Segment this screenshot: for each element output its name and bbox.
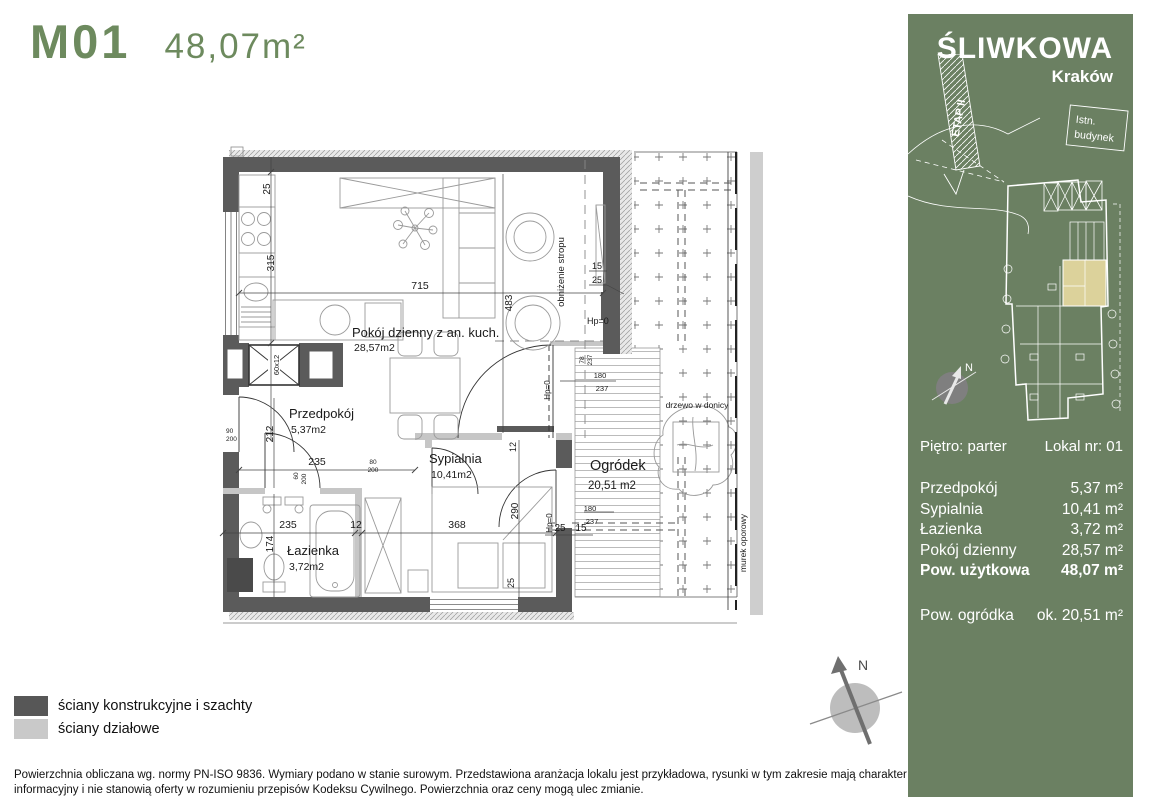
dim: 60 — [293, 472, 300, 480]
terrace-door-living — [458, 345, 553, 438]
floor-plan: drzewo w donicy murek oporowy — [215, 145, 775, 635]
site-boundary-dashed — [1113, 204, 1120, 414]
table-row: Przedpokój 5,37 m² — [920, 480, 1123, 501]
existing-label-2: budynek — [1074, 129, 1115, 145]
dim: 15 — [592, 261, 602, 271]
structural-wall-swatch — [14, 696, 48, 716]
dim: 78 — [579, 356, 586, 364]
legend-label: ściany działowe — [58, 721, 160, 737]
dim: 237 — [586, 517, 599, 526]
garden-label: Pow. ogródka — [920, 607, 1014, 625]
legend-label: ściany konstrukcyjne i szachty — [58, 698, 252, 714]
dim: 180 — [584, 504, 597, 513]
dim: 290 — [510, 502, 521, 519]
table-row-total: Pow. użytkowa 48,07 m² — [920, 562, 1123, 583]
room-area: 10,41 m² — [1062, 501, 1123, 519]
dim: 25 — [592, 275, 602, 285]
garage-row — [1044, 181, 1102, 211]
bottom-insulation — [229, 612, 574, 620]
kitchen-window — [223, 212, 239, 335]
entry-door — [223, 395, 294, 452]
existing-label-1: Istn. — [1075, 114, 1096, 128]
room-area: 28,57 m² — [1062, 542, 1123, 560]
hatched-unit — [1070, 222, 1104, 266]
dim: 212 — [265, 425, 276, 442]
rooms-table: Przedpokój 5,37 m² Sypialnia 10,41 m² Ła… — [920, 480, 1123, 627]
shaft-label: 60x12 — [272, 355, 281, 375]
room-area-living: 28,57m2 — [354, 342, 395, 354]
siteplan-north-label: N — [965, 362, 973, 374]
dim: 25 — [262, 183, 273, 195]
total-label: Pow. użytkowa — [920, 562, 1030, 580]
walls: 60x12 — [223, 147, 632, 612]
dim: 180 — [594, 371, 607, 380]
washbasin — [240, 522, 262, 548]
bed — [432, 487, 552, 592]
lowered-ceiling-label: obniżenie stropu — [556, 237, 567, 307]
dim: 237 — [596, 384, 609, 393]
dim: 12 — [350, 519, 362, 531]
bedroom-wardrobe — [365, 498, 401, 593]
dim: 25 — [506, 578, 516, 588]
dim: 80 — [369, 459, 377, 466]
unit-code: M01 — [30, 14, 130, 69]
dim: 200 — [368, 467, 379, 474]
dim: 483 — [504, 294, 515, 311]
disclaimer: Powierzchnia obliczana wg. normy PN-ISO … — [14, 768, 910, 798]
dim: 235 — [279, 519, 297, 531]
disclaimer-line1: Powierzchnia obliczana wg. normy PN-ISO … — [14, 768, 910, 783]
shaft: 60x12 — [223, 343, 343, 387]
room-area-garden: 20,51 m2 — [588, 480, 636, 492]
room-name: Przedpokój — [920, 480, 998, 498]
hp0-label: Hp=0 — [543, 380, 552, 400]
compass-icon: N — [800, 648, 910, 760]
hp0-label: Hp=0 — [587, 316, 609, 326]
plant — [394, 207, 438, 250]
dim: 315 — [266, 254, 277, 271]
room-label-bath: Łazienka — [287, 543, 340, 558]
room-area: 3,72 m² — [1070, 521, 1123, 539]
room-name: Pokój dzienny — [920, 542, 1017, 560]
floor-info: Piętro: parter Lokal nr: 01 — [920, 438, 1123, 455]
legend-row-partition: ściany działowe — [14, 717, 252, 740]
dim: 200 — [226, 436, 237, 443]
room-name: Łazienka — [920, 521, 982, 539]
partition-wall-swatch — [14, 719, 48, 739]
table-row: Pokój dzienny 28,57 m² — [920, 542, 1123, 563]
dim: 368 — [448, 519, 466, 531]
floor-plan-drawing: drzewo w donicy murek oporowy — [215, 145, 775, 635]
page: M01 48,07m² — [0, 0, 1149, 809]
wall-top — [223, 157, 620, 172]
hp0-label: Hp=0 — [545, 513, 554, 533]
dim: 237 — [587, 354, 594, 365]
room-label-garden: Ogródek — [590, 458, 646, 474]
room-label-hall: Przedpokój — [289, 406, 354, 421]
room-area-hall: 5,37m2 — [291, 424, 326, 436]
shower-unit — [227, 558, 253, 592]
dim: 174 — [265, 535, 276, 552]
room-area-bath: 3,72m2 — [289, 561, 324, 573]
wall-bottom — [223, 597, 572, 612]
page-title: M01 48,07m² — [30, 14, 307, 69]
highlighted-unit[interactable] — [1063, 260, 1106, 306]
nightstand — [408, 570, 428, 592]
total-area: 48,07 m² — [1061, 562, 1123, 580]
retaining-wall-label: murek oporowy — [738, 513, 748, 572]
dim: 90 — [226, 428, 234, 435]
dim: 235 — [308, 456, 326, 468]
room-area-bedroom: 10,41m2 — [431, 469, 472, 481]
dim: 715 — [411, 280, 429, 292]
garden-area: ok. 20,51 m² — [1037, 607, 1123, 625]
siteplan: ETAP II Istn. budynek — [908, 54, 1133, 444]
dim: 25 — [554, 523, 566, 534]
armchair — [506, 213, 554, 261]
retaining-wall-band — [750, 152, 763, 615]
table-row-garden: Pow. ogródka ok. 20,51 m² — [920, 607, 1123, 628]
unit-total-area: 48,07m² — [164, 27, 306, 67]
dining-table — [390, 332, 460, 439]
tree-label: drzewo w donicy — [666, 400, 730, 410]
legend-row-structural: ściany konstrukcyjne i szachty — [14, 694, 252, 717]
bath-accessories — [263, 497, 303, 513]
room-name: Sypialnia — [920, 501, 983, 519]
table-row: Łazienka 3,72 m² — [920, 521, 1123, 542]
floor-label: Piętro: parter — [920, 438, 1007, 455]
north-arrow — [831, 656, 847, 674]
dim: 200 — [301, 473, 308, 484]
table-row: Sypialnia 10,41 m² — [920, 501, 1123, 522]
room-label-bedroom: Sypialnia — [429, 451, 483, 466]
siteplan-compass-icon: N — [932, 362, 976, 404]
north-label: N — [858, 657, 868, 673]
disclaimer-line2: informacyjny i nie stanowią oferty w roz… — [14, 783, 910, 798]
kitchen-counter — [239, 175, 403, 340]
sliding-door-leaf — [497, 426, 554, 432]
room-label-living: Pokój dzienny z an. kuch. — [352, 325, 499, 340]
wardrobe-top — [340, 178, 495, 208]
room-area: 5,37 m² — [1070, 480, 1123, 498]
legend: ściany konstrukcyjne i szachty ściany dz… — [14, 694, 252, 740]
bedroom-window — [430, 597, 518, 612]
dim: 12 — [508, 442, 518, 452]
existing-building-box: Istn. budynek — [1066, 105, 1128, 151]
dim: 15 — [575, 523, 587, 534]
sidebar: ŚLIWKOWA Kraków ETAP II Istn. budynek — [908, 14, 1133, 797]
unit-number-label: Lokal nr: 01 — [1045, 438, 1123, 455]
doors — [223, 160, 603, 528]
